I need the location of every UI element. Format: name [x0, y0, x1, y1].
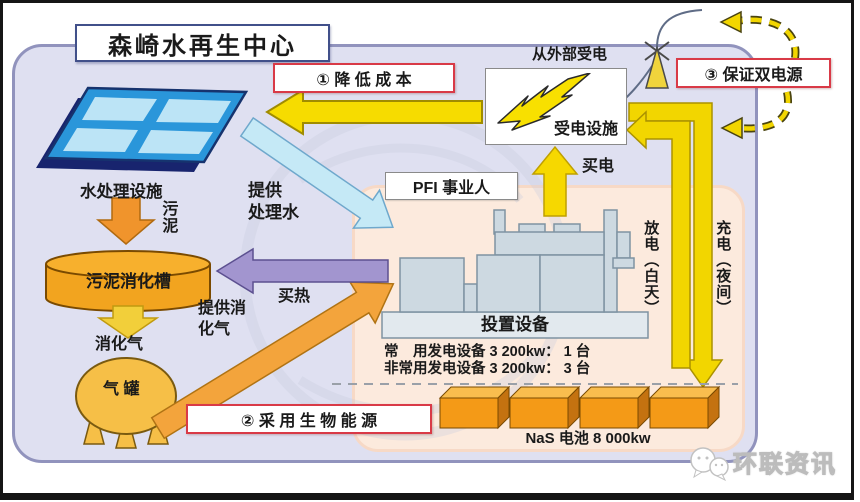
callout-bio-energy-label: ② 采 用 生 物 能 源 — [241, 407, 377, 431]
sludge-label: 污泥 — [158, 200, 176, 246]
wechat-icon — [686, 445, 734, 485]
treated-water-label: 提供 处理水 — [248, 180, 299, 224]
callout-dual-power: ③ 保证双电源 — [676, 58, 831, 88]
diagram-canvas: 森崎水再生中心 ① 降 低 成 本 ② 采 用 生 物 能 源 ③ 保证双电源 … — [0, 0, 860, 502]
spec-emergency-label: 非常用发电设备 3 200kw： 3 台 — [384, 361, 590, 378]
provide-gas-line1: 提供消 — [198, 299, 246, 320]
buy-heat-label: 买热 — [278, 288, 310, 306]
frame-bottom — [0, 493, 854, 500]
receiving-facility-label: 受电设施 — [554, 115, 618, 139]
treated-water-line1: 提供 — [248, 180, 299, 202]
digestion-tank-label: 污泥消化槽 — [86, 272, 171, 292]
spec-normal-label: 常 用发电设备 3 200kw： 1 台 — [384, 344, 590, 361]
frame-top — [0, 0, 854, 3]
equipment-label: 投置设备 — [430, 315, 600, 335]
treated-water-line2: 处理水 — [248, 202, 299, 224]
charge-label: 充电（夜间） — [714, 220, 731, 330]
callout-reduce-cost-label: ① 降 低 成 本 — [316, 66, 411, 90]
frame-left — [0, 0, 3, 497]
digestion-gas-label: 消化气 — [95, 336, 143, 354]
pfi-operator-box: PFI 事业人 — [385, 172, 518, 200]
page-title: 森崎水再生中心 — [75, 24, 330, 62]
provide-gas-label: 提供消 化气 — [198, 299, 246, 341]
water-facility-label: 水处理设施 — [80, 183, 163, 202]
callout-dual-power-label: ③ 保证双电源 — [705, 61, 803, 85]
external-power-label: 从外部受电 — [532, 46, 607, 63]
brand-watermark: 环联资讯 — [733, 451, 837, 479]
pfi-operator-label: PFI 事业人 — [413, 174, 490, 198]
frame-right — [851, 0, 854, 497]
discharge-label: 放电（白天） — [642, 220, 659, 330]
buy-power-label: 买电 — [582, 158, 614, 176]
provide-gas-line2: 化气 — [198, 320, 246, 341]
nas-battery-label: NaS 电池 8 000kw — [498, 430, 678, 447]
callout-reduce-cost: ① 降 低 成 本 — [273, 63, 455, 93]
receiving-facility-box: 受电设施 — [485, 68, 627, 145]
callout-bio-energy: ② 采 用 生 物 能 源 — [186, 404, 432, 434]
title-text: 森崎水再生中心 — [108, 26, 297, 61]
gas-tank-label: 气 罐 — [103, 381, 139, 399]
